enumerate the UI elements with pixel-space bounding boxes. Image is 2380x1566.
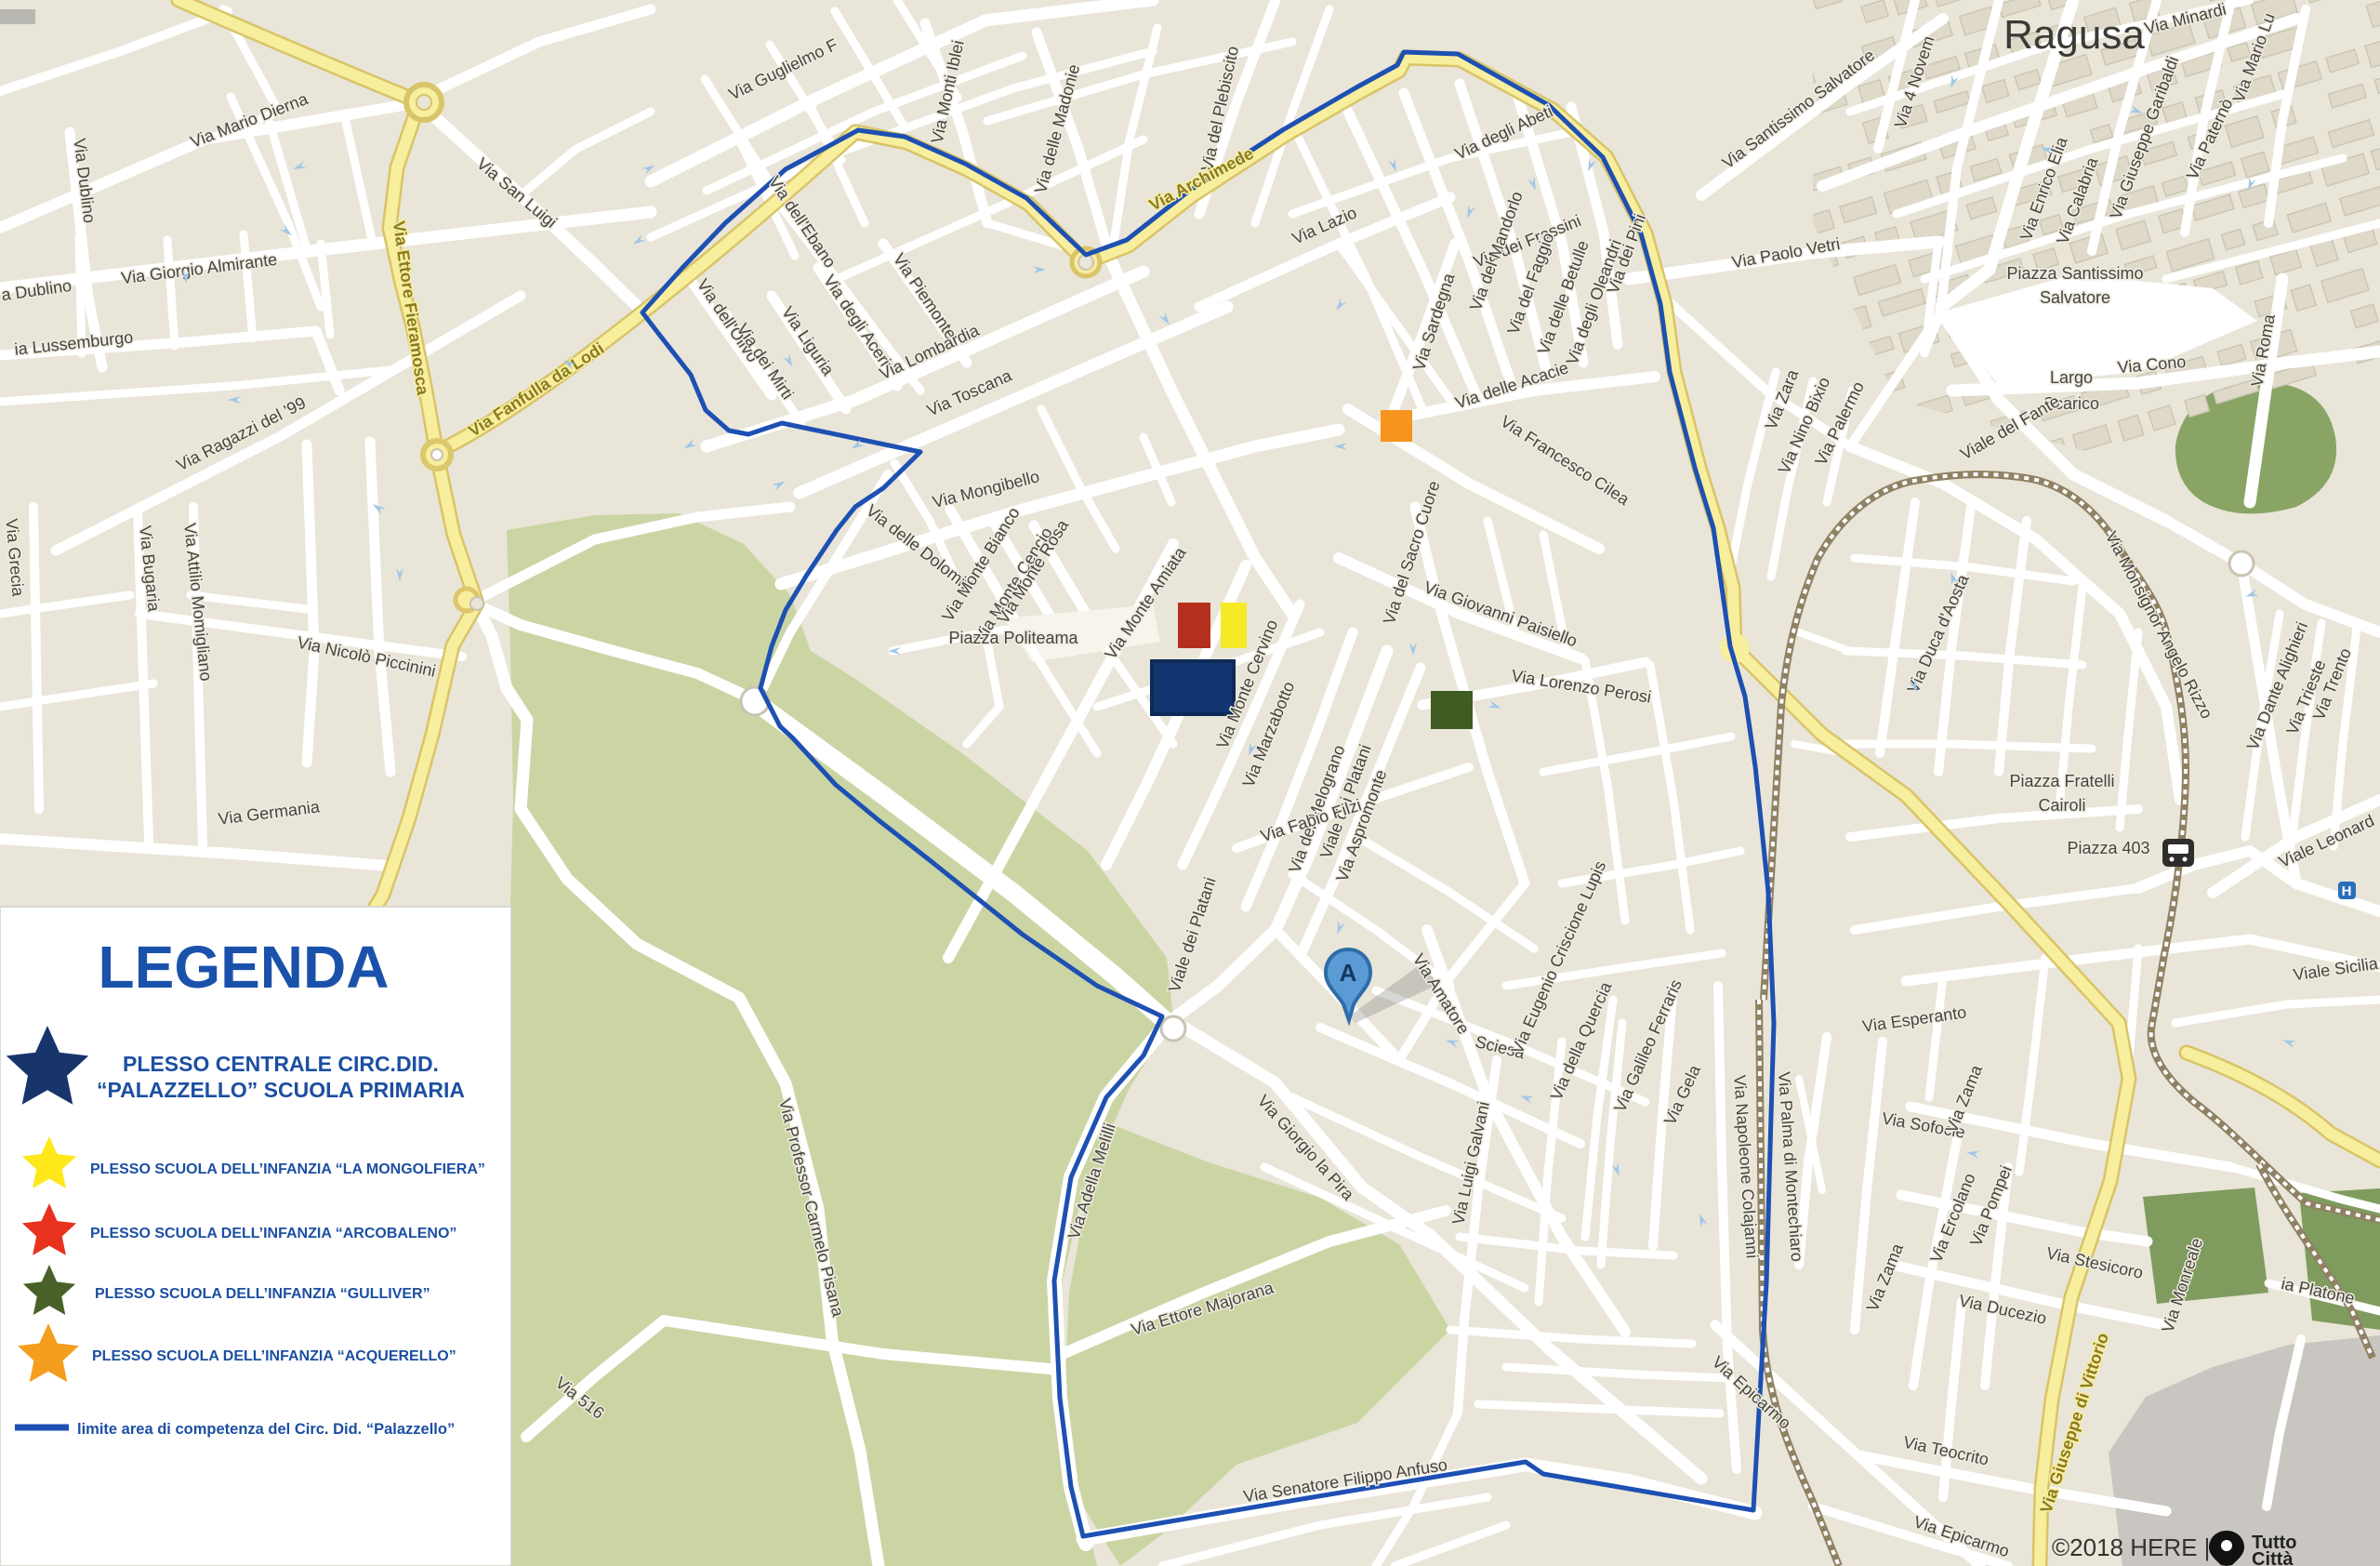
- svg-text:Piazza Santissimo: Piazza Santissimo: [2006, 264, 2143, 283]
- svg-text:limite area di competenza del: limite area di competenza del Circ. Did.…: [77, 1421, 455, 1438]
- svg-text:Piazza Fratelli: Piazza Fratelli: [2009, 772, 2114, 790]
- svg-text:PLESSO SCUOLA DELL’INFANZIA “A: PLESSO SCUOLA DELL’INFANZIA “ACQUERELLO”: [92, 1348, 456, 1364]
- svg-text:Piazza Politeama: Piazza Politeama: [948, 629, 1078, 647]
- svg-text:PLESSO SCUOLA DELL’INFANZIA “A: PLESSO SCUOLA DELL’INFANZIA “ARCOBALENO”: [90, 1226, 456, 1241]
- svg-text:Salvatore: Salvatore: [2040, 288, 2110, 307]
- svg-text:PLESSO SCUOLA DELL’INFANZIA “L: PLESSO SCUOLA DELL’INFANZIA “LA MONGOLFI…: [90, 1161, 485, 1177]
- svg-text:A: A: [1340, 959, 1357, 987]
- svg-text:Piazza 403: Piazza 403: [2067, 839, 2149, 857]
- svg-text:PLESSO CENTRALE CIRC.DID.: PLESSO CENTRALE CIRC.DID.: [123, 1052, 439, 1076]
- svg-text:“PALAZZELLO” SCUOLA PRIMARIA: “PALAZZELLO” SCUOLA PRIMARIA: [97, 1078, 465, 1102]
- svg-text:H: H: [2342, 883, 2352, 899]
- svg-text:Ragusa: Ragusa: [2003, 12, 2145, 58]
- svg-text:Cairoli: Cairoli: [2038, 796, 2085, 815]
- svg-text:©2018 HERE |: ©2018 HERE |: [2052, 1533, 2210, 1561]
- svg-text:LEGENDA: LEGENDA: [99, 934, 390, 1001]
- svg-text:Città: Città: [2252, 1549, 2294, 1566]
- svg-text:Largo: Largo: [2050, 368, 2093, 387]
- svg-text:PLESSO SCUOLA DELL’INFANZIA “G: PLESSO SCUOLA DELL’INFANZIA “GULLIVER”: [95, 1286, 430, 1302]
